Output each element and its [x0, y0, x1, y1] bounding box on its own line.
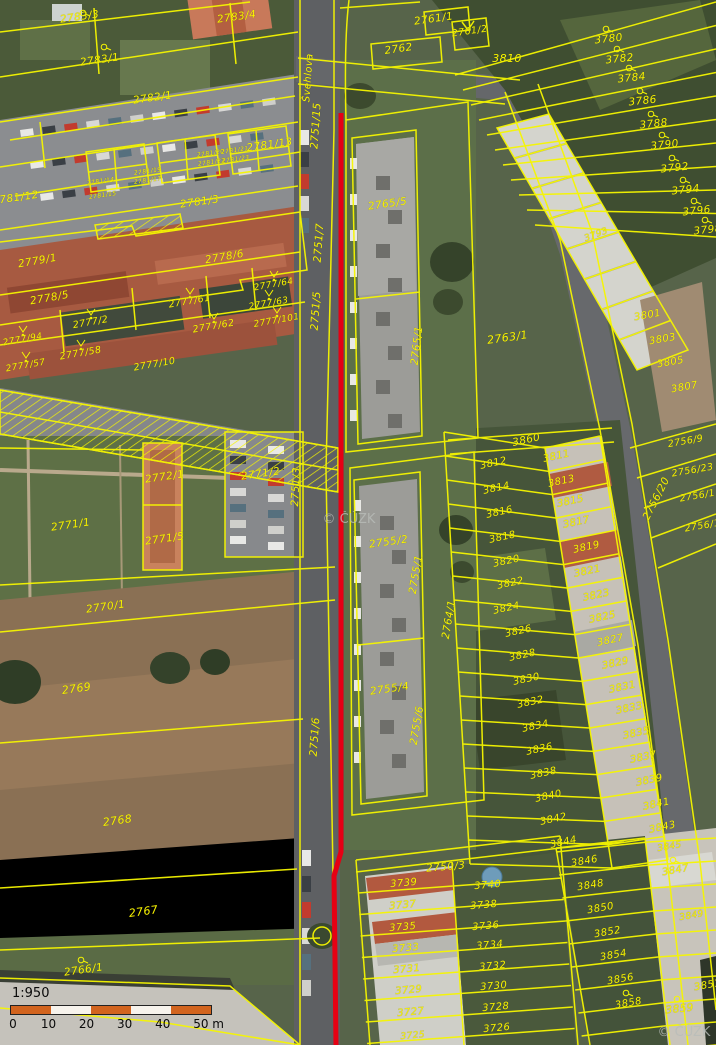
cuzk-watermark: © ČÚZK — [323, 511, 376, 527]
parcel-label: 3810 — [492, 52, 522, 65]
parcel-label: 3798 — [693, 223, 716, 238]
cadastral-map-view[interactable]: 2783/32783/42783/12782/12781/132781/1227… — [0, 0, 716, 1045]
parcel-label: 3735 — [389, 921, 417, 934]
map-canvas[interactable]: 2783/32783/42783/12782/12781/132781/1227… — [0, 0, 716, 1045]
scale-bar-graphic — [10, 1005, 212, 1015]
cuzk-watermark: © ČÚZK — [658, 1024, 711, 1040]
parcel-label: 3729 — [395, 984, 423, 997]
parcel-label: 3731 — [393, 963, 421, 976]
parcel-label: 3732 — [479, 960, 507, 973]
scale-ratio: 1:950 — [12, 986, 238, 1001]
scale-ticks: 0 10 20 30 40 50 m — [8, 1017, 224, 1031]
parcel-label: 3725 — [400, 1030, 425, 1042]
parcel-label: 3740 — [474, 879, 502, 892]
parcel-label: 3733 — [392, 942, 420, 955]
parcel-label: 3739 — [390, 877, 418, 890]
parcel-label: 3730 — [480, 980, 508, 993]
parcel-label: 3738 — [470, 899, 498, 912]
parcel-label: 2751/3 — [289, 467, 303, 507]
scale-bar: 1:950 0 10 20 30 40 50 m — [8, 986, 238, 1031]
parcel-label: 3728 — [482, 1001, 510, 1014]
parcel-label: 3734 — [476, 939, 504, 952]
parcel-label: 3726 — [483, 1022, 511, 1035]
parcel-label: 3736 — [472, 920, 500, 933]
